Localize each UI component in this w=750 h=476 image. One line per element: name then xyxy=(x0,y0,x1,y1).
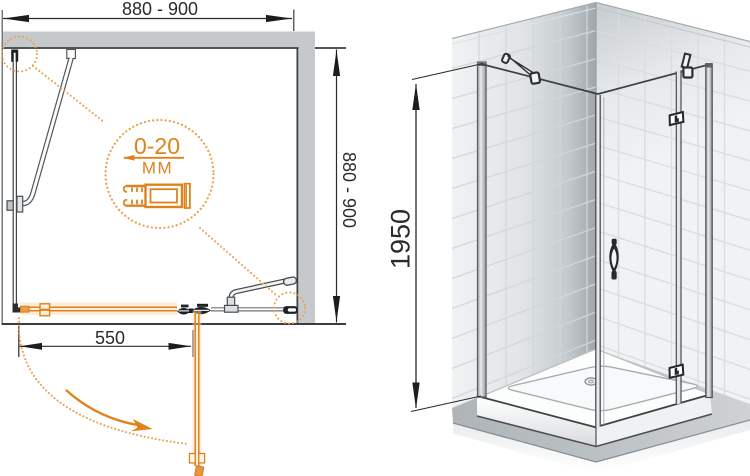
svg-text:880 - 900: 880 - 900 xyxy=(339,152,359,228)
svg-text:MM: MM xyxy=(142,159,173,178)
svg-text:0-20: 0-20 xyxy=(134,133,180,159)
svg-text:1950: 1950 xyxy=(386,209,416,269)
svg-text:880 - 900: 880 - 900 xyxy=(122,0,198,19)
svg-text:550: 550 xyxy=(95,328,125,348)
